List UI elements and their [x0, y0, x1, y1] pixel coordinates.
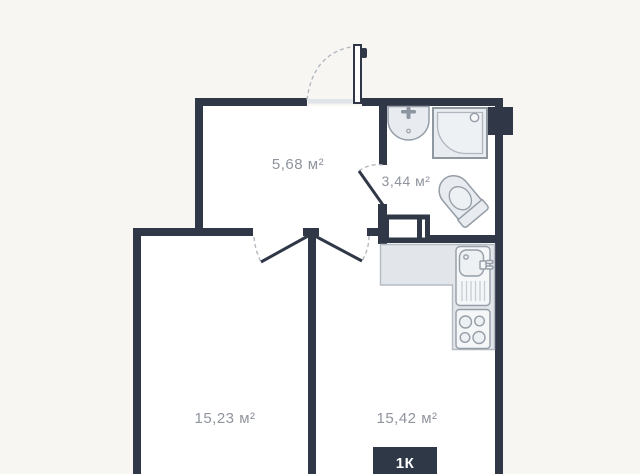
- floor-plan: 5,68 м² 3,44 м² 15,23 м² 15,42 м² 1К: [0, 0, 640, 474]
- kitchen-area-label: 15,42 м²: [357, 410, 457, 427]
- hallway-area-label: 5,68 м²: [248, 156, 348, 173]
- kitchen-sink-icon: [456, 247, 493, 306]
- kitchen-door-icon: [315, 236, 369, 261]
- entrance-door-icon: [307, 45, 367, 104]
- stove-icon: [456, 310, 490, 349]
- bedroom-door-icon: [254, 236, 308, 262]
- washing-machine-icon: [387, 215, 428, 240]
- wash-basin-icon: [388, 107, 429, 141]
- shower-icon: [433, 108, 487, 158]
- bedroom-area-label: 15,23 м²: [175, 410, 275, 427]
- room-count-badge: 1К: [373, 447, 437, 474]
- bathroom-area-label: 3,44 м²: [371, 173, 441, 189]
